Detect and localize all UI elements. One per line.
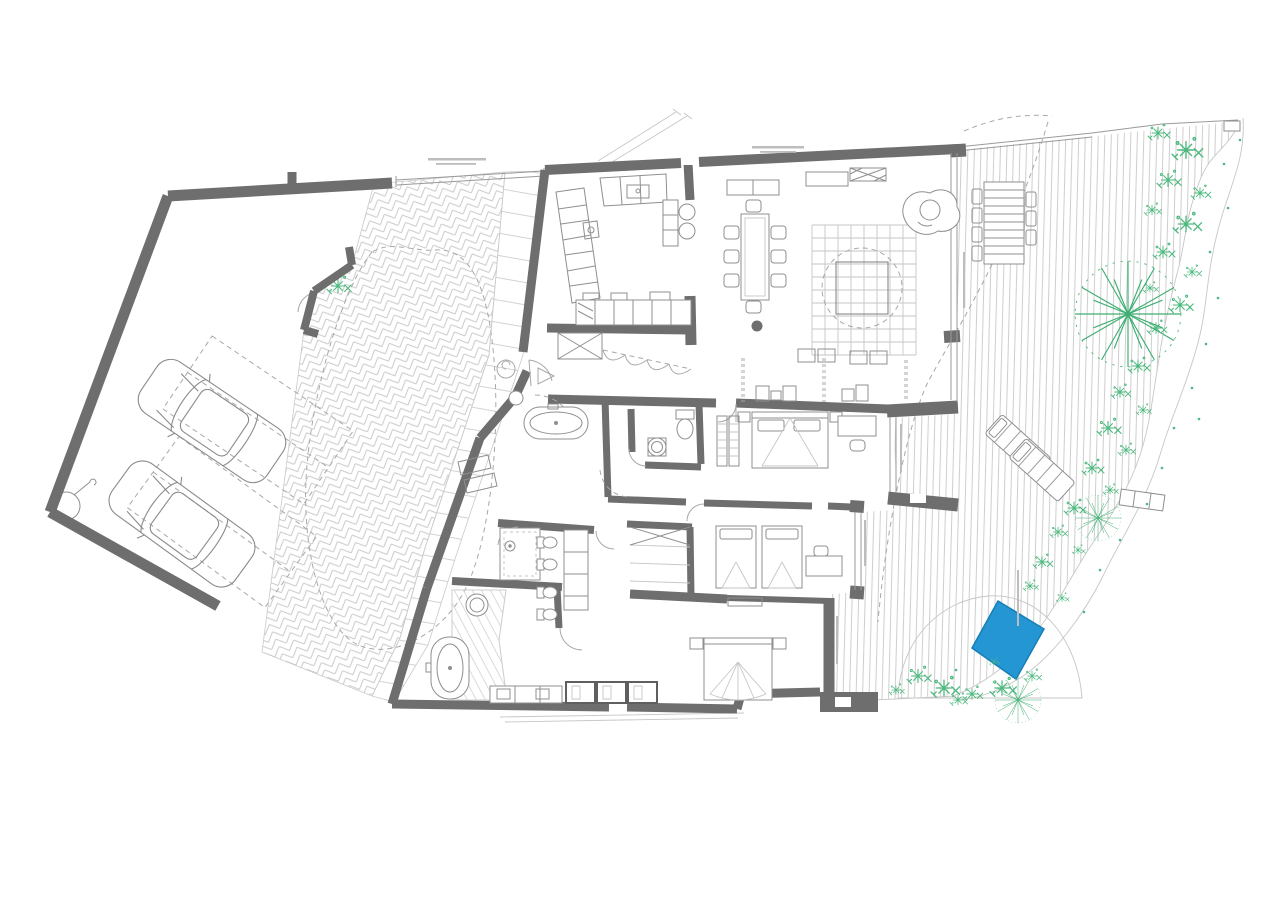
garden-bench [1119,489,1165,511]
stool-1 [679,204,695,220]
glazing-mullions [742,358,907,402]
kitchen-counter-top [600,174,667,206]
bed-single-b [762,526,802,588]
nightstand [738,412,750,422]
armchair [903,190,960,235]
desk-chair [814,546,828,556]
master-bedroom [566,638,786,703]
living-dining [724,168,960,402]
coffee-table [836,262,888,314]
planters [756,385,868,401]
floor-plan-drawing [0,0,1280,904]
entry-arrow-icon [538,368,554,384]
shower [500,528,540,580]
bedroom-1 [717,412,876,468]
desk [806,556,842,576]
wc-room [648,410,694,456]
desk [838,416,876,436]
boundary-dashed-arc [964,115,1052,131]
car-2 [98,449,266,600]
nightstand [773,638,786,649]
second-bathroom [500,528,588,620]
kitchen-counter-left [556,188,600,303]
console-2 [806,172,848,186]
boundary-marker [1224,121,1240,131]
bed-single-a [716,526,756,588]
round-column [509,391,523,405]
master-bathroom [426,590,562,703]
storage-column [564,530,588,610]
nightstand [690,638,703,649]
round-basin [648,438,666,456]
floor-plan-canvas [0,0,1280,904]
kitchen-peninsula [663,200,678,246]
desk-chair [850,440,865,451]
closet-unit [630,527,690,583]
bench-seats [798,349,887,364]
toilet [677,419,693,439]
cistern [676,410,694,419]
area-rug [812,225,916,355]
stool-2 [679,223,695,239]
wardrobe-doors [717,416,739,466]
structural-column [752,321,763,332]
stool [466,594,488,616]
